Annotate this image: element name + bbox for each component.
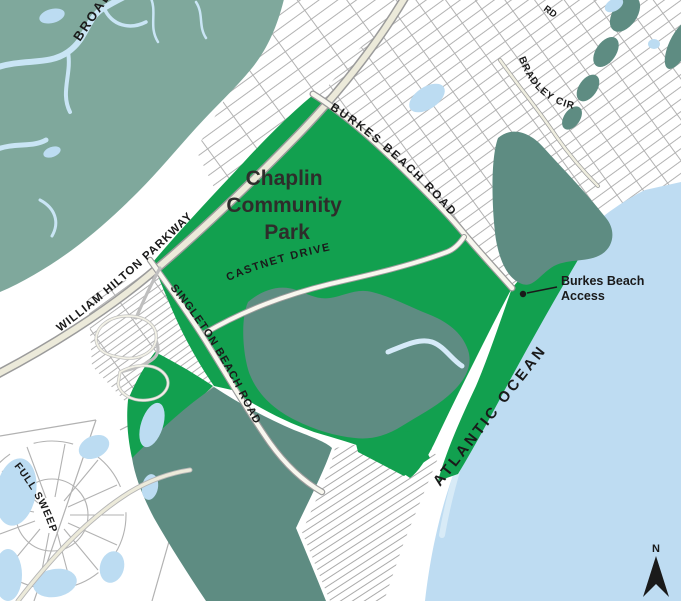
park-label-line3: Park <box>264 221 310 244</box>
pond <box>648 39 660 49</box>
access-label-line1: Burkes Beach <box>561 274 644 288</box>
map-canvas: BROAD RD BRADLEY CIR BURKES BEACH ROAD W… <box>0 0 681 601</box>
access-label-line2: Access <box>561 289 605 303</box>
park-map-svg: BROAD RD BRADLEY CIR BURKES BEACH ROAD W… <box>0 0 681 601</box>
north-arrow-n-label: N <box>652 543 660 555</box>
park-label-line2: Community <box>226 194 342 217</box>
access-point-dot <box>520 291 526 297</box>
park-label-line1: Chaplin <box>246 167 323 190</box>
